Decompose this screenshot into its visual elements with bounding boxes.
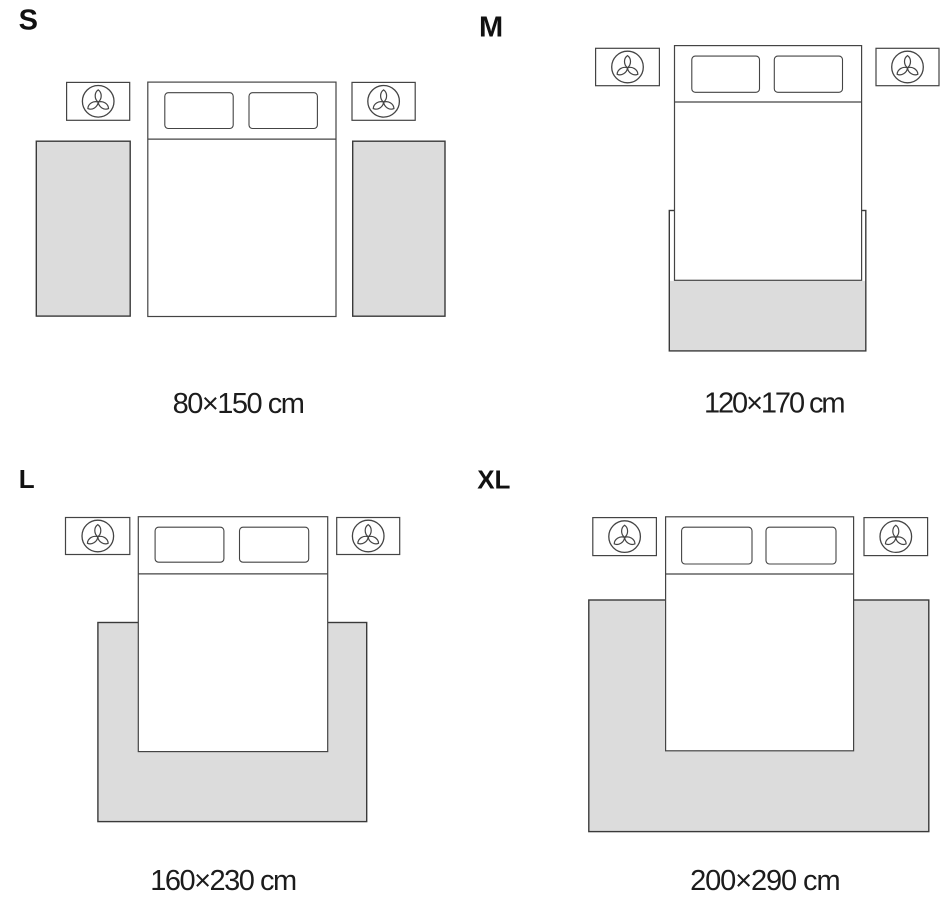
svg-text:M: M (479, 11, 503, 43)
svg-text:200×290 cm: 200×290 cm (690, 865, 839, 897)
svg-text:120×170 cm: 120×170 cm (704, 388, 844, 420)
svg-text:S: S (19, 5, 38, 37)
svg-text:XL: XL (477, 464, 510, 494)
svg-text:L: L (19, 464, 35, 494)
svg-text:80×150 cm: 80×150 cm (173, 388, 304, 420)
svg-text:160×230 cm: 160×230 cm (150, 865, 296, 897)
